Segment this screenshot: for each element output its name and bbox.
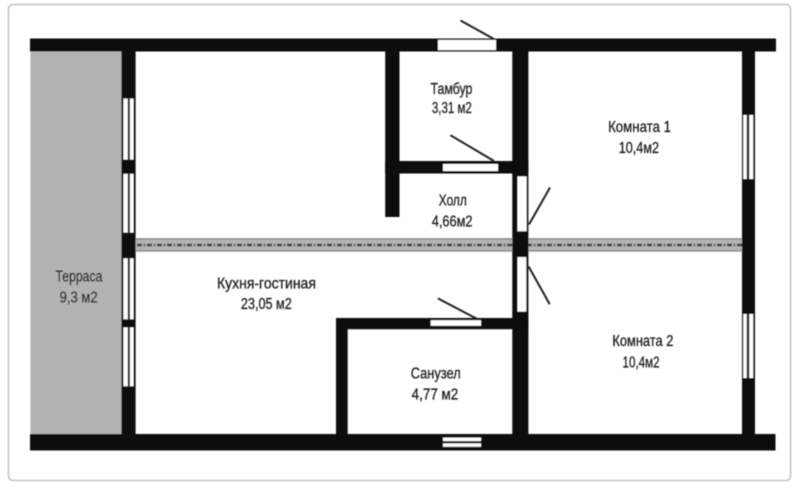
svg-text:Холл: Холл (439, 191, 467, 209)
svg-text:Терраса: Терраса (55, 268, 102, 286)
svg-text:10,4м2: 10,4м2 (619, 139, 659, 157)
svg-text:Комната 1: Комната 1 (608, 119, 671, 136)
svg-text:10,4м2: 10,4м2 (623, 353, 660, 371)
svg-text:4,77 м2: 4,77 м2 (412, 386, 459, 403)
svg-text:23,05 м2: 23,05 м2 (241, 296, 292, 314)
svg-text:Санузел: Санузел (411, 365, 461, 383)
svg-text:Тамбур: Тамбур (430, 80, 472, 98)
svg-text:9,3 м2: 9,3 м2 (60, 289, 98, 307)
svg-text:Кухня-гостиная: Кухня-гостиная (217, 275, 316, 293)
svg-text:3,31 м2: 3,31 м2 (432, 98, 472, 116)
svg-text:4,66м2: 4,66м2 (432, 213, 473, 231)
svg-text:Комната 2: Комната 2 (612, 333, 673, 351)
